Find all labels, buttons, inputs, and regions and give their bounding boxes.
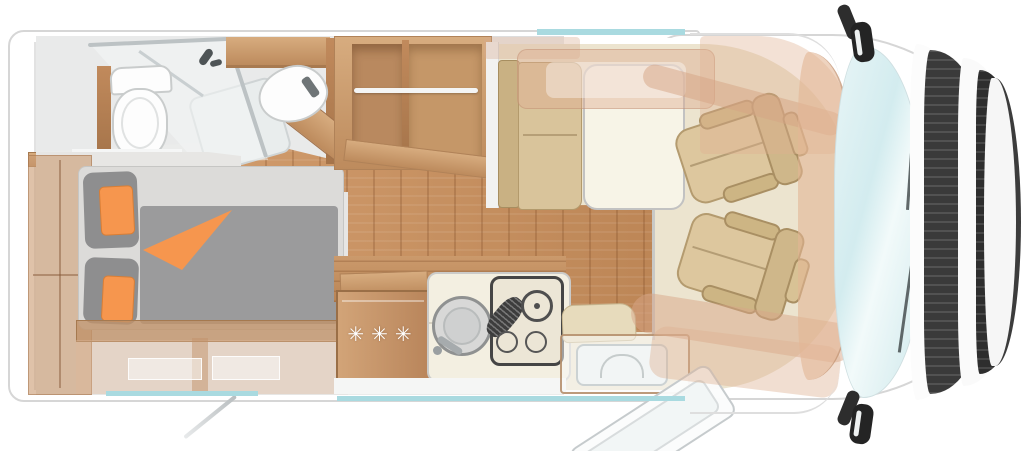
bed-duvet	[140, 206, 338, 324]
fridge-freezer-rating-icons: ✳✳✳	[338, 322, 428, 347]
toilet-bowl	[112, 88, 168, 158]
wardrobe-compartment-left	[352, 44, 404, 156]
toilet-side-panel	[97, 66, 111, 158]
kitchen-kickboard	[334, 378, 566, 394]
toilet-seat-line	[121, 97, 159, 149]
step-handle-arc	[600, 354, 644, 378]
bed-foot-bench	[76, 320, 344, 342]
dinette-seat-seam	[523, 134, 577, 136]
mirror-glass	[854, 29, 863, 55]
bathroom-shelf	[226, 37, 330, 68]
sink-bowl	[443, 307, 481, 345]
side-mirror-bottom	[848, 403, 874, 446]
trim-bottom-center	[337, 396, 685, 401]
windshield	[834, 46, 922, 398]
wardrobe-hanging-rail	[354, 88, 478, 93]
wardrobe-divider	[402, 40, 409, 162]
motorhome-floorplan: ✳✳✳	[0, 0, 1024, 451]
cab-roof-seam-bottom	[690, 368, 840, 414]
skylight-trim-top	[537, 29, 685, 35]
storage-mat-right	[212, 356, 280, 380]
fridge-lid-line	[342, 300, 424, 302]
mirror-glass	[853, 410, 862, 436]
wardrobe-compartment-right	[408, 44, 482, 158]
hob-burner-large	[521, 290, 553, 322]
storage-mat-left	[128, 358, 202, 380]
cushion-orange-bottom	[101, 275, 135, 323]
hob-burner-cap	[534, 303, 540, 309]
sink-faucet-base	[433, 346, 442, 355]
front-bumper	[984, 78, 1021, 366]
trim-bottom-left	[106, 391, 258, 396]
cushion-orange-top	[99, 185, 136, 236]
under-bed-storage	[76, 340, 342, 394]
hob-burner-small-left	[496, 331, 518, 353]
hob-burner-small-right	[525, 331, 547, 353]
